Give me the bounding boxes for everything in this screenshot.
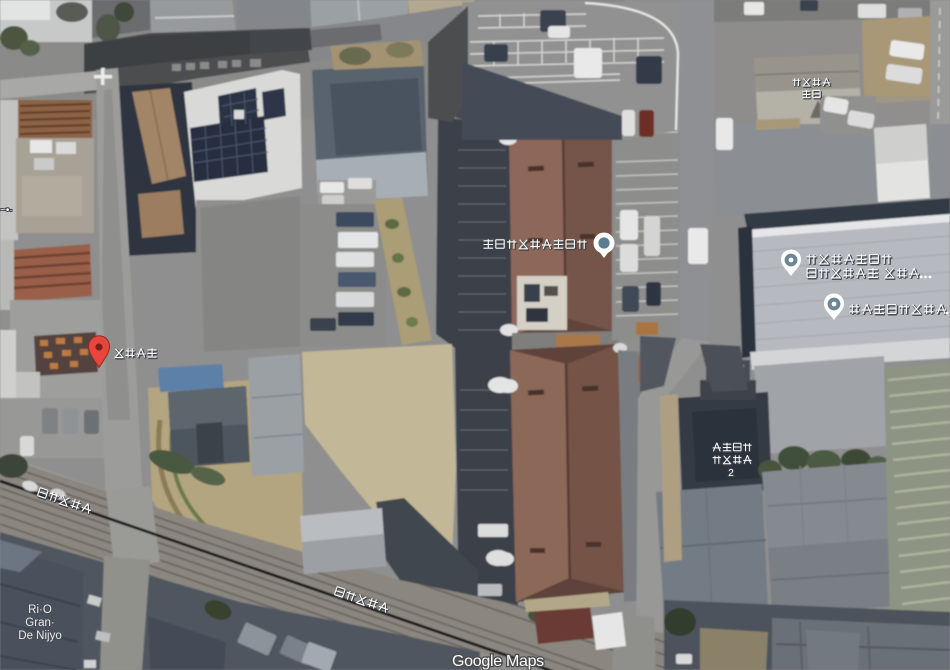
svg-text:Ri·O: Ri·O bbox=[28, 604, 52, 616]
svg-text:Gran·: Gran· bbox=[25, 617, 54, 629]
svg-text:2: 2 bbox=[728, 468, 734, 479]
svg-text:De Nijyo: De Nijyo bbox=[18, 630, 61, 642]
svg-text:~•·: ~•· bbox=[0, 205, 13, 216]
svg-text:Google Maps: Google Maps bbox=[452, 653, 544, 670]
